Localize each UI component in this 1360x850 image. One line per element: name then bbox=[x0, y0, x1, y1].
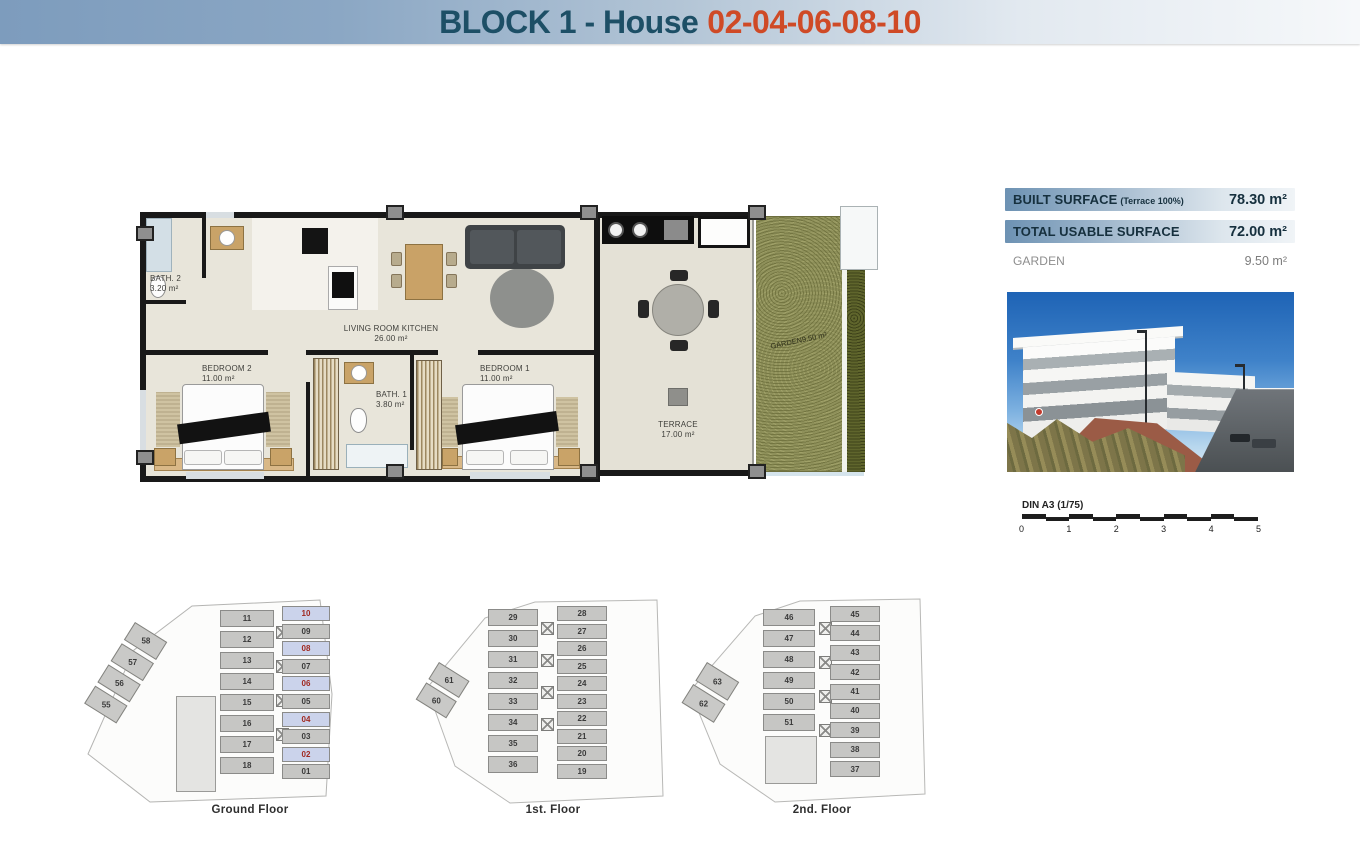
unit-cell: 30 bbox=[488, 630, 538, 647]
terrace-garden-divider bbox=[752, 218, 754, 470]
pillow bbox=[466, 450, 504, 465]
dining-chair bbox=[446, 274, 457, 288]
building-photo bbox=[1007, 292, 1294, 472]
kitchen-sink bbox=[219, 230, 235, 246]
terrace-chair bbox=[708, 300, 719, 318]
pillow bbox=[510, 450, 548, 465]
laundry-counter bbox=[602, 216, 694, 244]
miniplan-first-floor: 6160 2930313233343536 282726252423222120… bbox=[425, 596, 675, 806]
street-lamp bbox=[1145, 330, 1147, 438]
unit-cell: 10 bbox=[282, 606, 330, 621]
room-label-bath1: BATH. 13.80 m² bbox=[376, 390, 407, 411]
storage-box bbox=[698, 216, 750, 248]
bath2-wall-bottom bbox=[146, 300, 186, 304]
entry-door bbox=[206, 212, 234, 218]
partition-wall bbox=[306, 350, 438, 355]
unit-cell: 17 bbox=[220, 736, 274, 753]
glass-balustrade bbox=[756, 472, 864, 476]
unit-cell: 27 bbox=[557, 624, 607, 639]
dining-chair bbox=[391, 252, 402, 266]
surface-table: BUILT SURFACE(Terrace 100%) 78.30 m² TOT… bbox=[1005, 188, 1295, 269]
unit-cell: 15 bbox=[220, 694, 274, 711]
unit-cell: 05 bbox=[282, 694, 330, 709]
lifebuoy bbox=[1035, 408, 1043, 416]
middle-unit-column: 1112131415161718 bbox=[220, 610, 274, 778]
unit-cell: 41 bbox=[830, 684, 880, 700]
bath1-wall bbox=[410, 355, 414, 450]
unit-cell: 23 bbox=[557, 694, 607, 709]
cooktop bbox=[332, 272, 354, 298]
elevator-shaft bbox=[541, 718, 554, 731]
pillar bbox=[748, 464, 766, 479]
corner-box bbox=[840, 206, 878, 270]
terrace-chair bbox=[670, 340, 688, 351]
unit-cell: 47 bbox=[763, 630, 815, 647]
unit-cell: 18 bbox=[220, 757, 274, 774]
nightstand bbox=[558, 448, 580, 466]
pillar bbox=[580, 464, 598, 479]
title-house-numbers: 02-04-06-08-10 bbox=[707, 4, 921, 40]
pillar bbox=[386, 205, 404, 220]
unit-cell: 34 bbox=[488, 714, 538, 731]
unit-cell: 44 bbox=[830, 625, 880, 641]
unit-cell: 03 bbox=[282, 729, 330, 744]
stair-core bbox=[176, 696, 216, 792]
terrace-wall-bottom bbox=[600, 470, 754, 476]
scale-ruler bbox=[1022, 513, 1258, 522]
unit-cell: 35 bbox=[488, 735, 538, 752]
unit-cell: 01 bbox=[282, 764, 330, 779]
dining-chair bbox=[391, 274, 402, 288]
partition-wall bbox=[478, 350, 596, 355]
unit-cell: 39 bbox=[830, 722, 880, 738]
pillow bbox=[184, 450, 222, 465]
wardrobe bbox=[416, 360, 442, 470]
oven-column bbox=[302, 228, 328, 254]
planter bbox=[668, 388, 688, 406]
left-unit-column: 464748495051 bbox=[763, 609, 815, 735]
bath1-toilet bbox=[350, 408, 367, 433]
unit-cell: 49 bbox=[763, 672, 815, 689]
miniplan-ground-floor: 58575655 1112131415161718 10090807060504… bbox=[80, 596, 340, 806]
surface-row: BUILT SURFACE(Terrace 100%) 78.30 m² bbox=[1005, 188, 1295, 211]
unit-cell: 51 bbox=[763, 714, 815, 731]
surface-value: 72.00 m² bbox=[1229, 224, 1287, 240]
room-label-living: LIVING ROOM KITCHEN26.00 m² bbox=[336, 324, 446, 345]
unit-cell: 33 bbox=[488, 693, 538, 710]
unit-cell: 32 bbox=[488, 672, 538, 689]
surface-label: BUILT SURFACE(Terrace 100%) bbox=[1013, 191, 1184, 209]
elevator-shaft bbox=[541, 622, 554, 635]
unit-cell: 09 bbox=[282, 624, 330, 639]
brochure-page: BLOCK 1 - House02-04-06-08-10 bbox=[0, 0, 1360, 850]
main-floorplan: BATH. 23.20 m² LIVING ROOM KITCHEN26.00 … bbox=[140, 212, 870, 482]
sofa bbox=[465, 225, 565, 269]
unit-cell: 45 bbox=[830, 606, 880, 622]
scale-tick: 5 bbox=[1256, 524, 1261, 534]
scale-bar: DIN A3 (1/75) 012345 bbox=[1022, 500, 1260, 534]
terrace-table bbox=[652, 284, 704, 336]
bath1-basin bbox=[351, 365, 367, 381]
unit-cell: 12 bbox=[220, 631, 274, 648]
unit-cell: 36 bbox=[488, 756, 538, 773]
unit-cell: 08 bbox=[282, 641, 330, 656]
right-unit-column: 10090807060504030201 bbox=[282, 606, 330, 782]
right-unit-column: 28272625242322212019 bbox=[557, 606, 607, 781]
unit-cell: 31 bbox=[488, 651, 538, 668]
unit-cell: 26 bbox=[557, 641, 607, 656]
pillar bbox=[748, 205, 766, 220]
unit-cell: 06 bbox=[282, 676, 330, 691]
dining-table bbox=[405, 244, 443, 300]
unit-cell: 13 bbox=[220, 652, 274, 669]
terrace-chair bbox=[638, 300, 649, 318]
window bbox=[140, 390, 146, 454]
unit-cell: 28 bbox=[557, 606, 607, 621]
bath2-wall bbox=[202, 218, 206, 278]
bedside-rug bbox=[266, 392, 290, 447]
pillar bbox=[580, 205, 598, 220]
room-label-bedroom2: BEDROOM 211.00 m² bbox=[202, 364, 252, 385]
unit-cell: 19 bbox=[557, 764, 607, 779]
unit-cell: 46 bbox=[763, 609, 815, 626]
unit-cell: 22 bbox=[557, 711, 607, 726]
room-label-terrace: TERRACE17.00 m² bbox=[640, 420, 716, 441]
unit-cell: 07 bbox=[282, 659, 330, 674]
title-block: BLOCK 1 - House bbox=[439, 4, 698, 40]
scale-ticks: 012345 bbox=[1019, 524, 1261, 534]
nightstand bbox=[442, 448, 458, 466]
unit-cell: 42 bbox=[830, 664, 880, 680]
nightstand bbox=[154, 448, 176, 466]
unit-cell: 11 bbox=[220, 610, 274, 627]
page-title: BLOCK 1 - House02-04-06-08-10 bbox=[439, 4, 921, 41]
surface-row: TOTAL USABLE SURFACE 72.00 m² bbox=[1005, 220, 1295, 243]
unit-cell: 21 bbox=[557, 729, 607, 744]
pillar bbox=[136, 450, 154, 465]
unit-cell: 14 bbox=[220, 673, 274, 690]
unit-cell: 38 bbox=[830, 742, 880, 758]
unit-cell: 29 bbox=[488, 609, 538, 626]
unit-cell: 37 bbox=[830, 761, 880, 777]
scale-tick: 2 bbox=[1114, 524, 1119, 534]
dining-chair bbox=[446, 252, 457, 266]
terrace-chair bbox=[670, 270, 688, 281]
car bbox=[1252, 439, 1276, 448]
scale-tick: 4 bbox=[1209, 524, 1214, 534]
pillow bbox=[224, 450, 262, 465]
unit-cell: 43 bbox=[830, 645, 880, 661]
scale-tick: 3 bbox=[1161, 524, 1166, 534]
miniplan-second-floor: 6362 464748495051 454443424140393837 bbox=[685, 596, 935, 806]
partition-wall bbox=[146, 350, 268, 355]
elevator-shaft bbox=[541, 686, 554, 699]
left-unit-column: 2930313233343536 bbox=[488, 609, 538, 777]
bedside-rug bbox=[556, 397, 578, 447]
car bbox=[1230, 434, 1250, 442]
scale-tick: 0 bbox=[1019, 524, 1024, 534]
elevator-shaft bbox=[541, 654, 554, 667]
surface-value: 9.50 m² bbox=[1245, 254, 1287, 268]
nightstand bbox=[270, 448, 292, 466]
surface-label: TOTAL USABLE SURFACE bbox=[1013, 223, 1183, 241]
bedside-rug bbox=[156, 392, 180, 447]
unit-cell: 20 bbox=[557, 746, 607, 761]
unit-cell: 24 bbox=[557, 676, 607, 691]
floor-label-ground: Ground Floor bbox=[165, 804, 335, 816]
surface-value: 78.30 m² bbox=[1229, 192, 1287, 208]
stair-core bbox=[765, 736, 817, 784]
room-label-bedroom1: BEDROOM 111.00 m² bbox=[480, 364, 530, 385]
floor-label-first: 1st. Floor bbox=[468, 804, 638, 816]
unit-cell: 40 bbox=[830, 703, 880, 719]
room-label-bath2: BATH. 23.20 m² bbox=[150, 274, 181, 295]
window bbox=[470, 472, 550, 479]
right-unit-column: 454443424140393837 bbox=[830, 606, 880, 781]
unit-cell: 02 bbox=[282, 747, 330, 762]
pillar bbox=[136, 226, 154, 241]
unit-cell: 04 bbox=[282, 712, 330, 727]
unit-cell: 25 bbox=[557, 659, 607, 674]
unit-cell: 48 bbox=[763, 651, 815, 668]
unit-cell: 50 bbox=[763, 693, 815, 710]
window bbox=[186, 472, 264, 479]
surface-row: GARDEN 9.50 m² bbox=[1005, 252, 1295, 269]
scale-label: DIN A3 (1/75) bbox=[1022, 500, 1260, 511]
bedroom2-wall bbox=[306, 382, 310, 476]
surface-label: GARDEN bbox=[1013, 252, 1068, 270]
header-bar: BLOCK 1 - House02-04-06-08-10 bbox=[0, 0, 1360, 44]
bedside-rug bbox=[442, 397, 458, 447]
floor-label-second: 2nd. Floor bbox=[737, 804, 907, 816]
pillar bbox=[386, 464, 404, 479]
unit-cell: 16 bbox=[220, 715, 274, 732]
wardrobe bbox=[313, 358, 339, 470]
round-rug bbox=[490, 268, 554, 328]
scale-tick: 1 bbox=[1066, 524, 1071, 534]
